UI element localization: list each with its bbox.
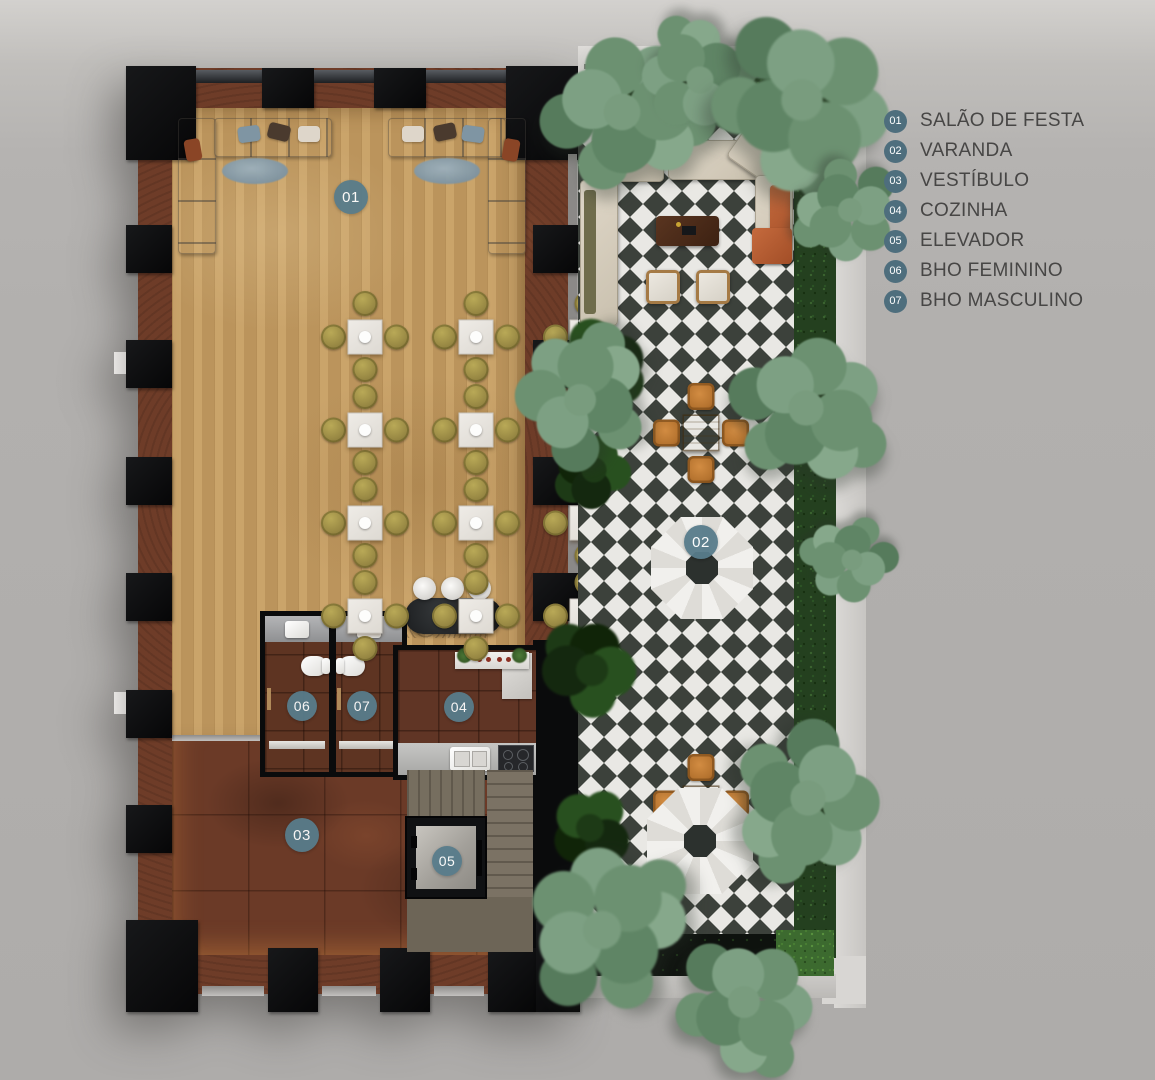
legend-label: COZINHA bbox=[920, 200, 1008, 222]
chair bbox=[352, 477, 377, 502]
marker-number: 05 bbox=[439, 853, 456, 869]
column bbox=[380, 948, 430, 1012]
column bbox=[262, 68, 314, 108]
pillow bbox=[237, 125, 261, 144]
top-rail bbox=[584, 64, 858, 69]
marker-number: 01 bbox=[342, 189, 360, 206]
table-set bbox=[428, 477, 524, 568]
chair bbox=[495, 510, 520, 535]
chair bbox=[463, 543, 488, 568]
marker-number: 07 bbox=[354, 698, 371, 714]
exterior-door-mark bbox=[114, 692, 126, 714]
chair bbox=[495, 324, 520, 349]
chair bbox=[352, 291, 377, 316]
centerpiece bbox=[359, 424, 371, 436]
door-threshold bbox=[434, 986, 484, 996]
elevator-rail bbox=[411, 868, 417, 880]
legend-item: 04 COZINHA bbox=[884, 196, 1084, 226]
outdoor-chair bbox=[653, 420, 680, 447]
chair bbox=[321, 510, 346, 535]
marker-number: 03 bbox=[293, 827, 311, 844]
centerpiece bbox=[470, 331, 482, 343]
chair bbox=[352, 543, 377, 568]
legend-label: BHO MASCULINO bbox=[920, 290, 1083, 312]
bottom-parapet bbox=[578, 974, 836, 998]
centerpiece bbox=[359, 517, 371, 529]
sink bbox=[285, 621, 309, 638]
hedge bbox=[776, 930, 834, 976]
column bbox=[374, 68, 426, 108]
rug bbox=[414, 158, 480, 184]
legend-item: 06 BHO FEMININO bbox=[884, 256, 1084, 286]
room-marker-elevador: 05 bbox=[432, 846, 462, 876]
chair bbox=[463, 570, 488, 595]
marker-number: 02 bbox=[692, 534, 710, 551]
chair bbox=[463, 384, 488, 409]
chair bbox=[384, 417, 409, 442]
outdoor-armchair bbox=[696, 270, 730, 304]
chair bbox=[463, 477, 488, 502]
room-marker-bho-masculino: 07 bbox=[347, 691, 377, 721]
legend-item: 07 BHO MASCULINO bbox=[884, 286, 1084, 316]
towel-bar bbox=[337, 688, 341, 710]
centerpiece bbox=[470, 424, 482, 436]
table-set bbox=[317, 477, 413, 568]
stairs-lower-flight bbox=[407, 897, 533, 952]
elevator-rail bbox=[477, 840, 482, 876]
chair bbox=[321, 603, 346, 628]
burner bbox=[503, 750, 513, 760]
centerpiece bbox=[470, 610, 482, 622]
towel-bar bbox=[267, 688, 271, 710]
fruit-bowl bbox=[676, 222, 681, 227]
cooktop bbox=[498, 745, 534, 772]
legend-badge: 03 bbox=[884, 170, 907, 193]
table-set bbox=[428, 384, 524, 475]
legend-label: BHO FEMININO bbox=[920, 260, 1063, 282]
coffee-table bbox=[656, 216, 719, 246]
chair bbox=[495, 417, 520, 442]
chair bbox=[432, 324, 457, 349]
window-lintel bbox=[196, 70, 262, 83]
door-threshold bbox=[202, 986, 264, 996]
legend-badge: 01 bbox=[884, 110, 907, 133]
door-threshold bbox=[322, 986, 376, 996]
elevator-rail bbox=[411, 836, 417, 848]
table-set bbox=[428, 570, 524, 661]
rug bbox=[222, 158, 288, 184]
room-marker-salao-de-festa: 01 bbox=[334, 180, 368, 214]
bath-bench bbox=[339, 741, 397, 749]
chair bbox=[543, 324, 568, 349]
chair bbox=[495, 603, 520, 628]
chair bbox=[463, 357, 488, 382]
marker-number: 06 bbox=[294, 698, 311, 714]
column bbox=[126, 225, 172, 273]
legend-label: VARANDA bbox=[920, 140, 1013, 162]
table-set bbox=[428, 291, 524, 382]
terracotta-ottoman bbox=[752, 228, 792, 264]
column bbox=[126, 573, 172, 621]
top-parapet bbox=[578, 46, 866, 76]
outdoor-chair bbox=[722, 420, 749, 447]
chair bbox=[463, 636, 488, 661]
column bbox=[126, 690, 172, 738]
room-marker-cozinha: 04 bbox=[444, 692, 474, 722]
centerpiece bbox=[359, 610, 371, 622]
window-lintel bbox=[426, 70, 506, 83]
outdoor-chair bbox=[688, 456, 715, 483]
legend-item: 01 SALÃO DE FESTA bbox=[884, 106, 1084, 136]
kitchen-sink bbox=[450, 747, 490, 771]
chair bbox=[432, 510, 457, 535]
chair bbox=[352, 570, 377, 595]
outdoor-dining-set bbox=[650, 383, 752, 483]
chair bbox=[321, 417, 346, 442]
sofa-cushion bbox=[584, 190, 596, 314]
centerpiece bbox=[359, 331, 371, 343]
legend-label: SALÃO DE FESTA bbox=[920, 110, 1084, 132]
legend-label: VESTÍBULO bbox=[920, 170, 1029, 192]
room-marker-vestibulo: 03 bbox=[285, 818, 319, 852]
chair bbox=[321, 324, 346, 349]
column bbox=[126, 340, 172, 388]
sink-basin bbox=[472, 751, 487, 767]
exterior-door-mark bbox=[114, 352, 126, 374]
burner bbox=[517, 749, 529, 761]
tray bbox=[682, 226, 696, 235]
column bbox=[126, 805, 172, 853]
outdoor-sofa bbox=[590, 140, 664, 182]
table-set bbox=[317, 570, 413, 661]
legend-badge: 06 bbox=[884, 260, 907, 283]
column bbox=[126, 920, 198, 1012]
centerpiece bbox=[470, 517, 482, 529]
marker-number: 04 bbox=[451, 699, 468, 715]
legend-badge: 05 bbox=[884, 230, 907, 253]
chair bbox=[384, 510, 409, 535]
chair bbox=[352, 450, 377, 475]
outdoor-chair bbox=[688, 383, 715, 410]
legend-badge: 02 bbox=[884, 140, 907, 163]
patio-umbrella bbox=[647, 788, 753, 894]
chair bbox=[352, 384, 377, 409]
umbrella-center bbox=[684, 825, 716, 857]
room-marker-bho-feminino: 06 bbox=[287, 691, 317, 721]
legend-item: 03 VESTÍBULO bbox=[884, 166, 1084, 196]
chair bbox=[352, 357, 377, 382]
floor-plan-stage: 01 02 03 04 05 06 07 01 SALÃO DE FESTA 0… bbox=[0, 0, 1155, 1080]
chair bbox=[543, 417, 568, 442]
chair bbox=[432, 417, 457, 442]
legend-label: ELEVADOR bbox=[920, 230, 1024, 252]
chair bbox=[543, 510, 568, 535]
pillow bbox=[402, 126, 424, 142]
pillow bbox=[298, 126, 320, 142]
legend-badge: 04 bbox=[884, 200, 907, 223]
column bbox=[268, 948, 318, 1012]
veranda-block bbox=[570, 40, 870, 1020]
legend-badge: 07 bbox=[884, 290, 907, 313]
outdoor-chair bbox=[688, 754, 715, 781]
legend-item: 05 ELEVADOR bbox=[884, 226, 1084, 256]
chair bbox=[352, 636, 377, 661]
right-parapet bbox=[834, 46, 866, 1008]
chair bbox=[384, 603, 409, 628]
chair bbox=[432, 603, 457, 628]
table-set bbox=[317, 291, 413, 382]
sink-basin bbox=[454, 751, 470, 767]
outdoor-armchair bbox=[646, 270, 680, 304]
pillow bbox=[461, 125, 485, 144]
legend: 01 SALÃO DE FESTA 02 VARANDA 03 VESTÍBUL… bbox=[884, 106, 1084, 316]
stairs-upper-flight bbox=[407, 770, 485, 818]
window-lintel bbox=[314, 70, 374, 83]
hedge bbox=[794, 74, 836, 958]
room-marker-varanda: 02 bbox=[684, 525, 718, 559]
bath-bench bbox=[269, 741, 325, 749]
chair bbox=[543, 603, 568, 628]
column bbox=[488, 948, 536, 1012]
chair bbox=[463, 291, 488, 316]
table-set bbox=[317, 384, 413, 475]
chair bbox=[384, 324, 409, 349]
chair bbox=[463, 450, 488, 475]
outdoor-table bbox=[683, 415, 720, 452]
column bbox=[126, 457, 172, 505]
legend-item: 02 VARANDA bbox=[884, 136, 1084, 166]
